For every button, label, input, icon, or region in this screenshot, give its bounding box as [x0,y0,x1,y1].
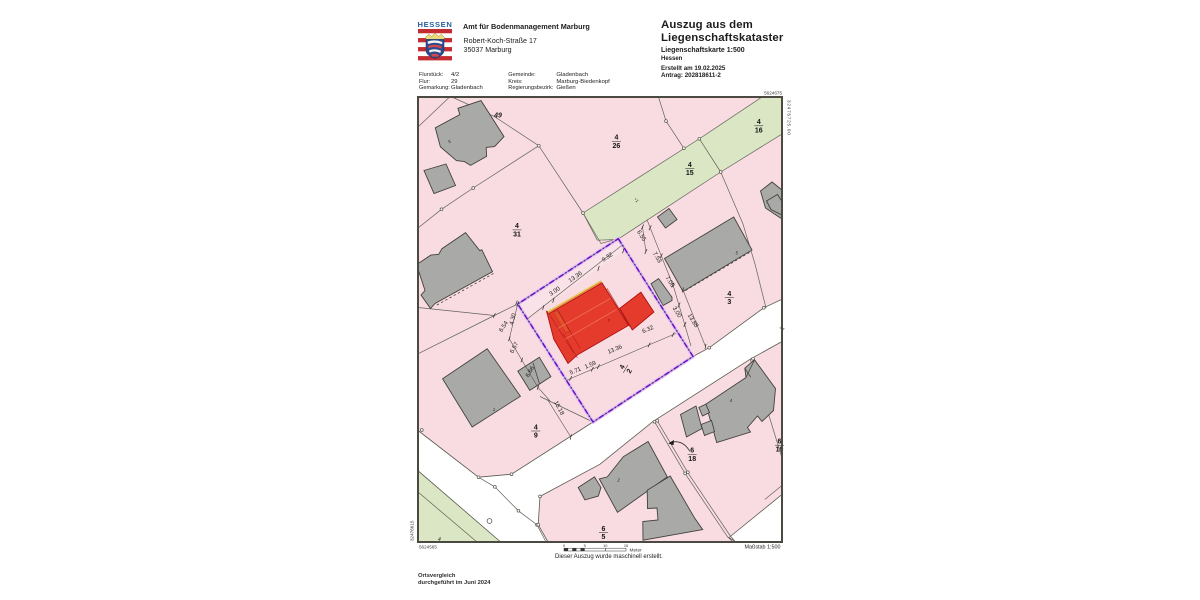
svg-text:4: 4 [534,424,538,431]
svg-text:16: 16 [755,127,763,134]
svg-text:4: 4 [515,223,519,230]
svg-text:10: 10 [603,543,608,548]
svg-text:31: 31 [513,231,521,238]
svg-text:32476615: 32476615 [410,520,415,541]
svg-text:6: 6 [690,448,694,455]
svg-text:9: 9 [534,433,538,440]
svg-text:5: 5 [584,543,586,548]
svg-text:2: 2 [616,477,620,482]
svg-text:4: 4 [614,135,618,142]
svg-text:26: 26 [613,143,621,150]
svg-text:Dieser Auszug wurde maschinell: Dieser Auszug wurde maschinell erstellt. [555,554,663,560]
svg-text:6: 6 [778,439,782,446]
svg-text:3: 3 [727,299,731,306]
svg-text:18: 18 [688,456,696,463]
svg-text:0: 0 [563,543,566,548]
svg-text:4: 4 [688,162,692,169]
svg-text:6: 6 [602,526,606,533]
svg-text:5624675: 5624675 [764,91,782,96]
svg-text:Maßstab 1:500: Maßstab 1:500 [745,545,781,551]
svg-text:15: 15 [686,170,694,177]
svg-text:5624565: 5624565 [419,545,437,550]
svg-text:Meter: Meter [630,548,643,554]
svg-text:49: 49 [493,113,502,120]
svg-text:5: 5 [602,534,606,541]
svg-text:4: 4 [757,119,761,126]
svg-text:32476725.00: 32476725.00 [787,100,792,136]
svg-text:15: 15 [624,543,628,548]
svg-text:4: 4 [727,291,731,298]
